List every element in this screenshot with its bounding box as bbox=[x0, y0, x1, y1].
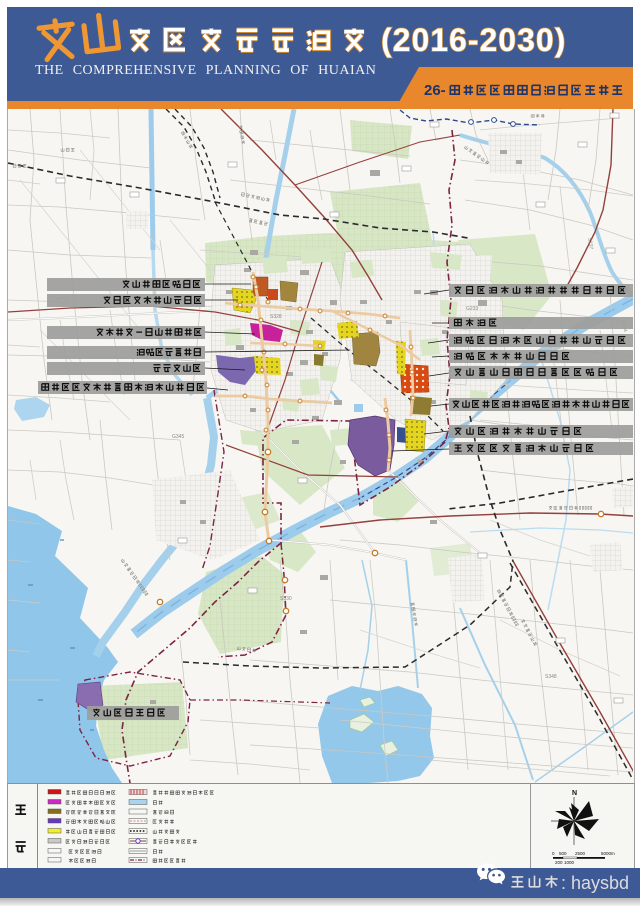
svg-text:200: 200 bbox=[555, 860, 563, 865]
svg-text:: haysbd: : haysbd bbox=[561, 873, 629, 893]
svg-text:S328: S328 bbox=[270, 314, 282, 320]
svg-text:2500: 2500 bbox=[575, 851, 586, 856]
svg-text:5000m: 5000m bbox=[601, 851, 615, 856]
svg-text:G233: G233 bbox=[466, 306, 478, 312]
svg-text:500: 500 bbox=[559, 851, 567, 856]
svg-text:1000: 1000 bbox=[564, 860, 575, 865]
svg-text:(2016-2030): (2016-2030) bbox=[381, 22, 566, 58]
svg-text:S348: S348 bbox=[545, 674, 557, 680]
svg-text:26-: 26- bbox=[424, 82, 446, 99]
svg-text:0: 0 bbox=[552, 851, 555, 856]
svg-text:G345: G345 bbox=[172, 434, 184, 440]
svg-text:N: N bbox=[572, 790, 577, 797]
svg-text:S330: S330 bbox=[280, 596, 292, 602]
